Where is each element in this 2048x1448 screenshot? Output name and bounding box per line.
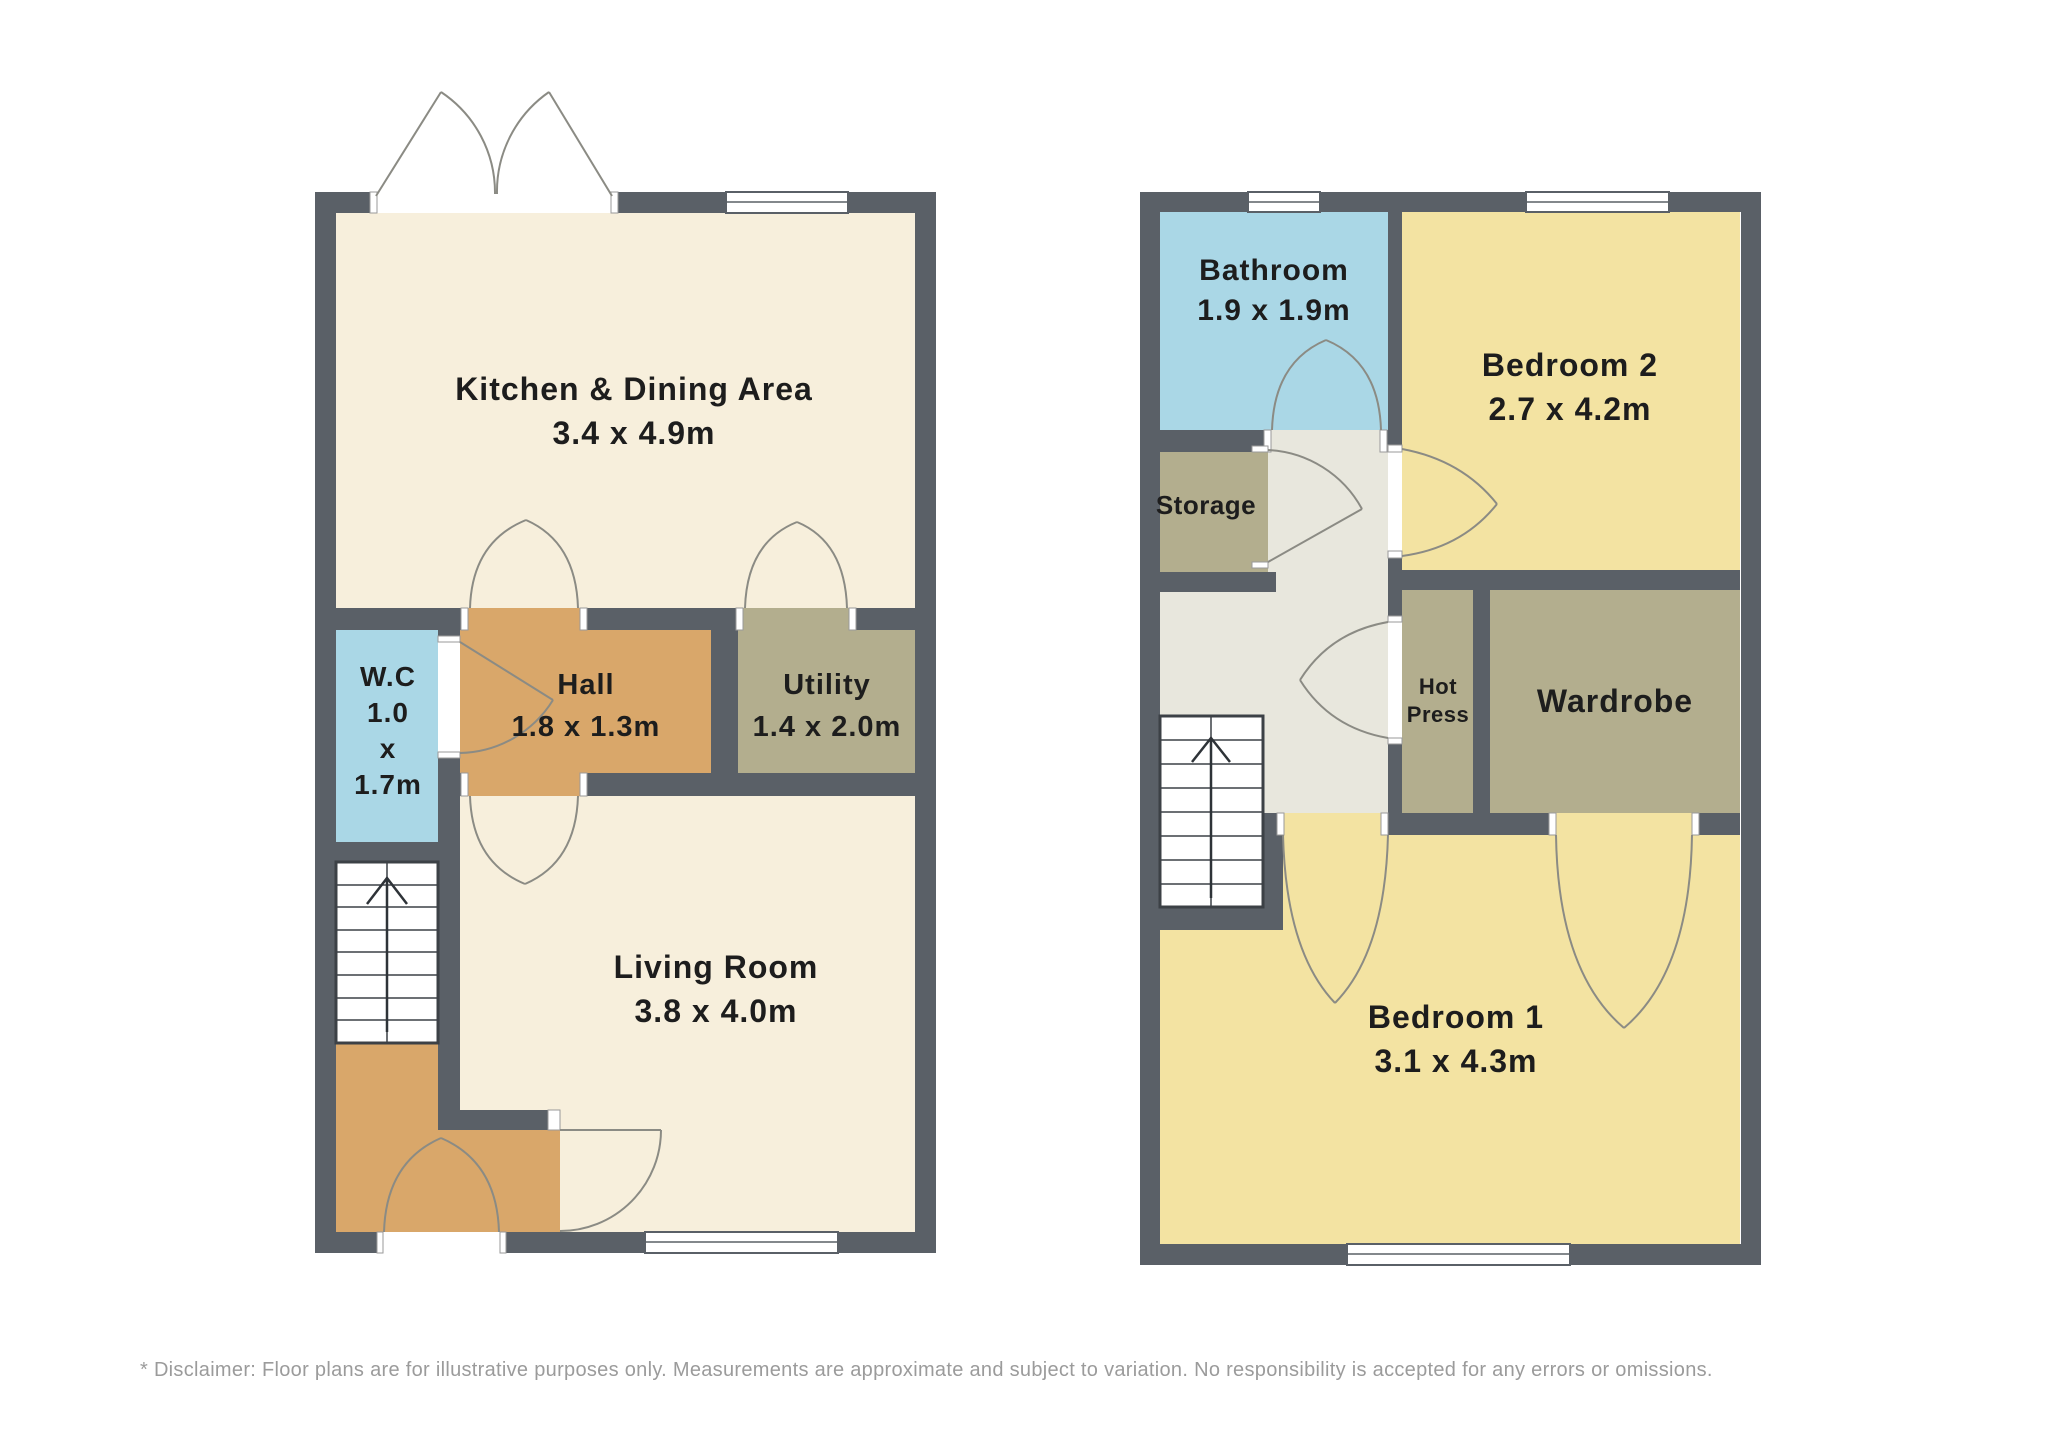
bathroom-door-opening bbox=[1270, 430, 1381, 452]
kitchen-dims: 3.4 x 4.9m bbox=[553, 415, 716, 451]
door-jamb bbox=[438, 752, 460, 758]
door-jamb bbox=[1549, 813, 1556, 835]
kitchen-label: Kitchen & Dining Area bbox=[455, 371, 813, 407]
bedroom1-door-opening bbox=[1283, 813, 1388, 835]
door-jamb bbox=[377, 1232, 383, 1253]
landing-floor-1 bbox=[1268, 452, 1388, 592]
door-jamb bbox=[500, 1232, 506, 1253]
landing-floor-3 bbox=[1263, 716, 1388, 813]
door-jamb bbox=[461, 608, 468, 630]
wc-dims-1: 1.0 bbox=[367, 697, 409, 728]
kitchen-utility-door-opening bbox=[743, 608, 849, 630]
utility-floor bbox=[738, 630, 915, 773]
stairs-ground bbox=[336, 862, 438, 1043]
hall-label: Hall bbox=[557, 669, 614, 701]
wall-stairs-bottom bbox=[1160, 907, 1283, 930]
door-jamb bbox=[736, 608, 743, 630]
wall-storage-bottom bbox=[1160, 572, 1276, 592]
landing-floor-2 bbox=[1160, 592, 1388, 716]
disclaimer-text: * Disclaimer: Floor plans are for illust… bbox=[140, 1359, 1713, 1381]
door-jamb bbox=[461, 773, 468, 796]
wall-wc-bottom bbox=[336, 842, 460, 862]
window-kitchen bbox=[726, 192, 848, 213]
window-living-room bbox=[645, 1232, 838, 1253]
utility-dims: 1.4 x 2.0m bbox=[753, 711, 902, 743]
bedroom1-floor-upper bbox=[1283, 835, 1740, 930]
wc-label: W.C bbox=[360, 661, 416, 692]
door-jamb bbox=[1692, 813, 1699, 835]
stairs-first bbox=[1160, 716, 1263, 907]
door-jamb bbox=[1388, 738, 1402, 744]
wall-right bbox=[1741, 192, 1761, 1265]
wall-right bbox=[915, 192, 936, 1253]
door-jamb bbox=[1380, 430, 1387, 452]
storage-label: Storage bbox=[1156, 490, 1256, 520]
window-bathroom bbox=[1248, 192, 1320, 212]
wall-hall-utility bbox=[711, 630, 738, 773]
ground-floor-plan: Kitchen & Dining Area 3.4 x 4.9m W.C 1.0… bbox=[315, 92, 936, 1253]
wall-left bbox=[315, 192, 336, 1253]
wc-dims-3: 1.7m bbox=[354, 769, 422, 800]
door-jamb bbox=[1388, 551, 1402, 558]
hot-press-label-1: Hot bbox=[1419, 674, 1457, 699]
kitchen-hall-door-opening bbox=[468, 608, 580, 630]
door-jamb bbox=[438, 636, 460, 642]
door-jamb bbox=[1381, 813, 1388, 835]
door-jamb bbox=[1252, 562, 1268, 568]
wc-dims-2: x bbox=[380, 733, 397, 764]
french-door-opening bbox=[376, 192, 612, 213]
bedroom2-dims: 2.7 x 4.2m bbox=[1489, 391, 1652, 427]
door-jamb bbox=[849, 608, 856, 630]
utility-label: Utility bbox=[783, 669, 871, 701]
floor-plan-drawing: Kitchen & Dining Area 3.4 x 4.9m W.C 1.0… bbox=[0, 0, 2048, 1448]
french-door-arc bbox=[497, 92, 549, 194]
french-door-leaf bbox=[549, 92, 612, 196]
door-jamb bbox=[1388, 616, 1402, 622]
door-jamb bbox=[580, 608, 587, 630]
hot-press-label-2: Press bbox=[1407, 702, 1469, 727]
wall-left bbox=[1140, 192, 1160, 1265]
hall-living-door-opening bbox=[468, 773, 580, 796]
door-jamb bbox=[1252, 446, 1268, 452]
bathroom-label: Bathroom bbox=[1199, 254, 1349, 287]
wall-hotpress-wardrobe bbox=[1473, 590, 1490, 813]
front-door-opening bbox=[383, 1232, 500, 1253]
window-bedroom1 bbox=[1347, 1244, 1570, 1265]
wall-entrance-living bbox=[438, 1110, 560, 1130]
wall-bathroom-bedroom2 bbox=[1388, 212, 1402, 430]
bedroom1-label: Bedroom 1 bbox=[1368, 999, 1544, 1035]
wc-door-opening bbox=[438, 642, 460, 752]
first-floor-plan: Bathroom 1.9 x 1.9m Bedroom 2 2.7 x 4.2m… bbox=[1140, 192, 1761, 1265]
bedroom2-label: Bedroom 2 bbox=[1482, 347, 1658, 383]
floor-plan-page: Kitchen & Dining Area 3.4 x 4.9m W.C 1.0… bbox=[0, 0, 2048, 1448]
door-jamb bbox=[1277, 813, 1284, 835]
door-jamb bbox=[548, 1110, 560, 1130]
window-bedroom2 bbox=[1526, 192, 1669, 212]
door-jamb bbox=[580, 773, 587, 796]
french-door-leaf bbox=[376, 92, 441, 196]
living-room-dims: 3.8 x 4.0m bbox=[635, 993, 798, 1029]
wardrobe-door-opening bbox=[1556, 813, 1692, 835]
wall-bedroom2-bottom bbox=[1388, 570, 1740, 590]
bathroom-dims: 1.9 x 1.9m bbox=[1197, 294, 1350, 327]
bedroom1-dims: 3.1 x 4.3m bbox=[1375, 1043, 1538, 1079]
wall-stairs-living bbox=[438, 862, 460, 1110]
door-jamb bbox=[1388, 445, 1402, 452]
living-room-label: Living Room bbox=[614, 949, 819, 985]
bedroom1-floor bbox=[1160, 930, 1740, 1244]
hall-floor bbox=[460, 630, 711, 773]
wardrobe-label: Wardrobe bbox=[1537, 683, 1693, 719]
hall-dims: 1.8 x 1.3m bbox=[512, 711, 661, 743]
kitchen-floor bbox=[336, 213, 915, 608]
french-door-arc bbox=[441, 92, 495, 194]
